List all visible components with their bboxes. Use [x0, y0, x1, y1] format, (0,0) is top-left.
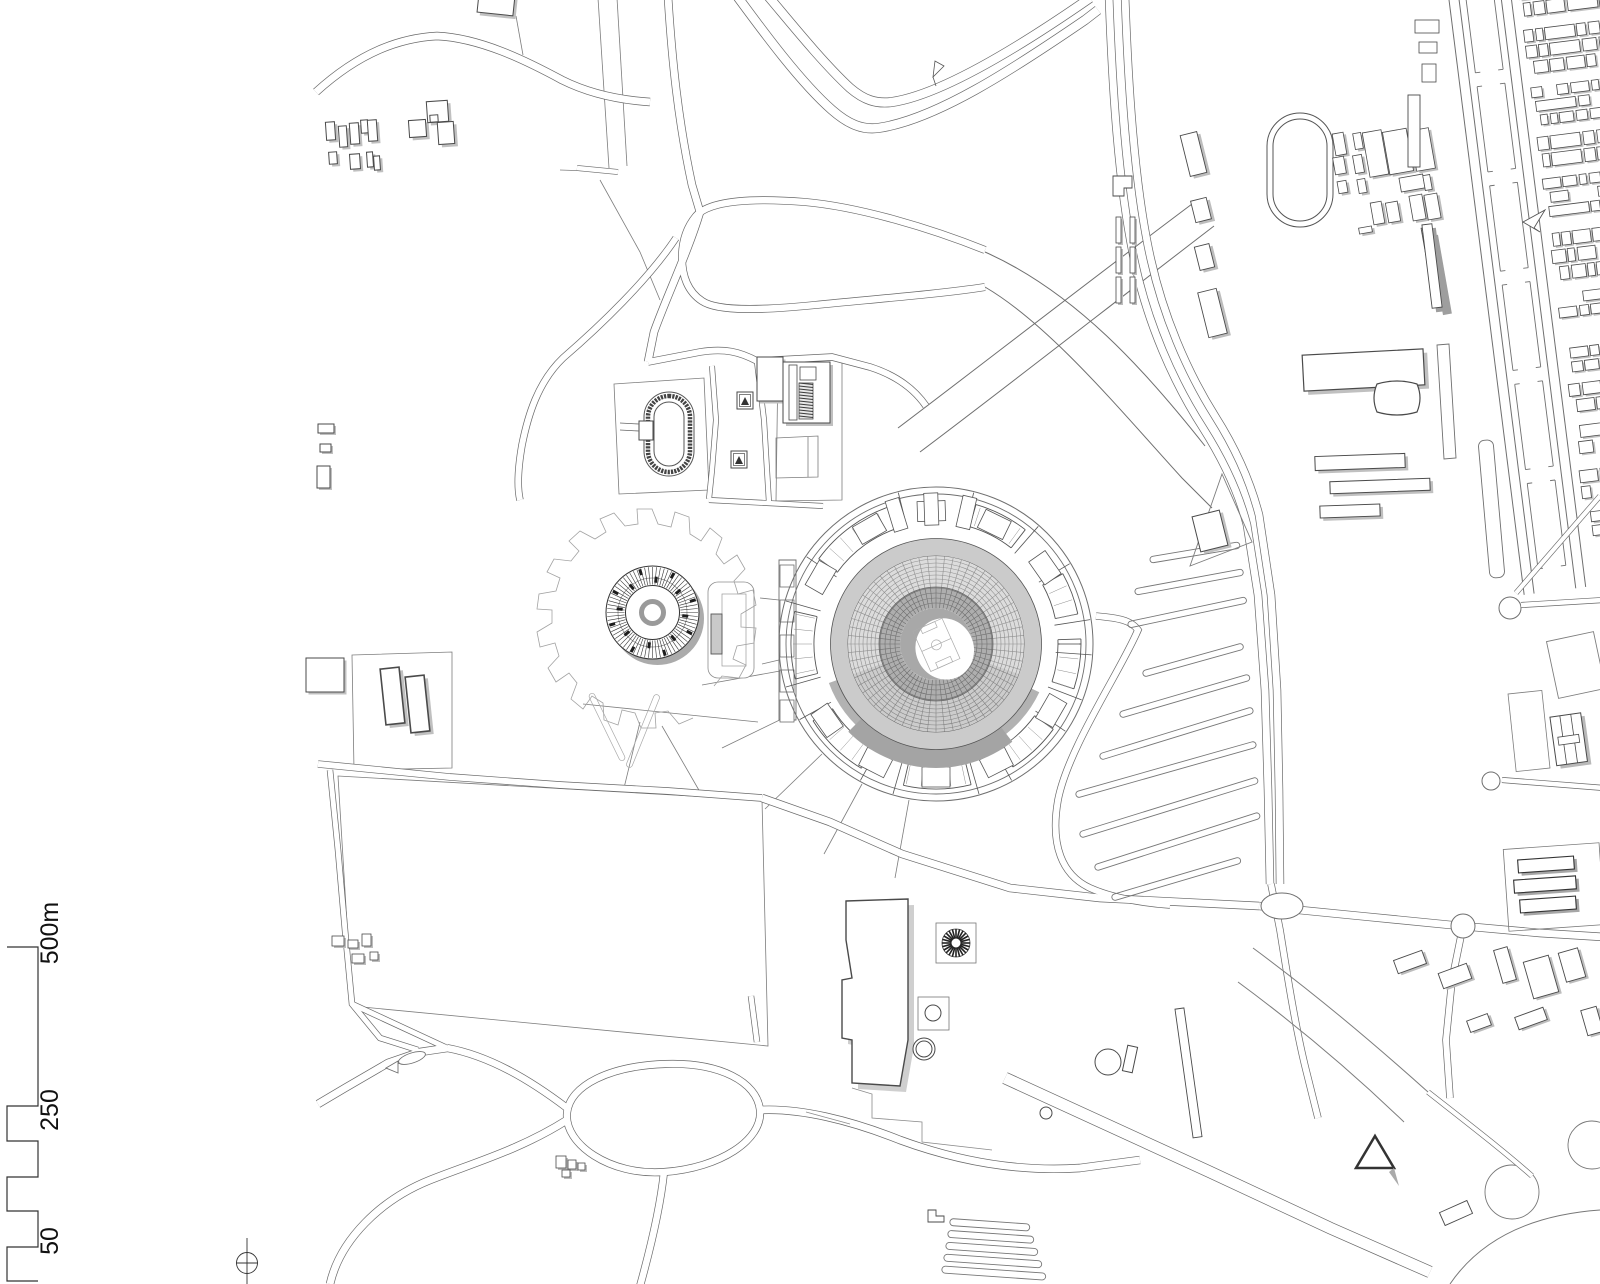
- svg-text:50: 50: [36, 1227, 64, 1255]
- svg-text:500m: 500m: [36, 902, 64, 965]
- svg-text:250: 250: [36, 1089, 64, 1131]
